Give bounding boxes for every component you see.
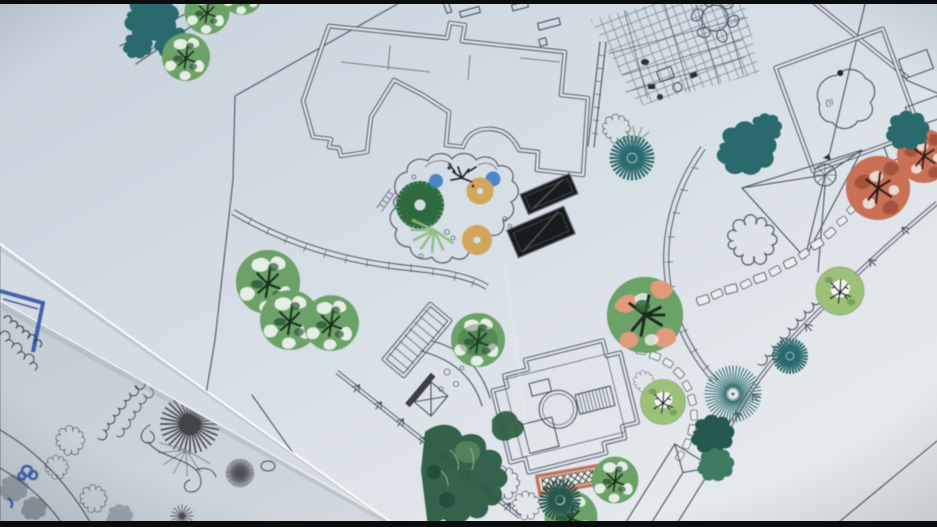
letterbox-top xyxy=(0,0,937,4)
plans-photo xyxy=(0,0,937,527)
video-frame xyxy=(0,0,937,527)
letterbox-bottom xyxy=(0,521,937,527)
vignette xyxy=(0,0,937,527)
